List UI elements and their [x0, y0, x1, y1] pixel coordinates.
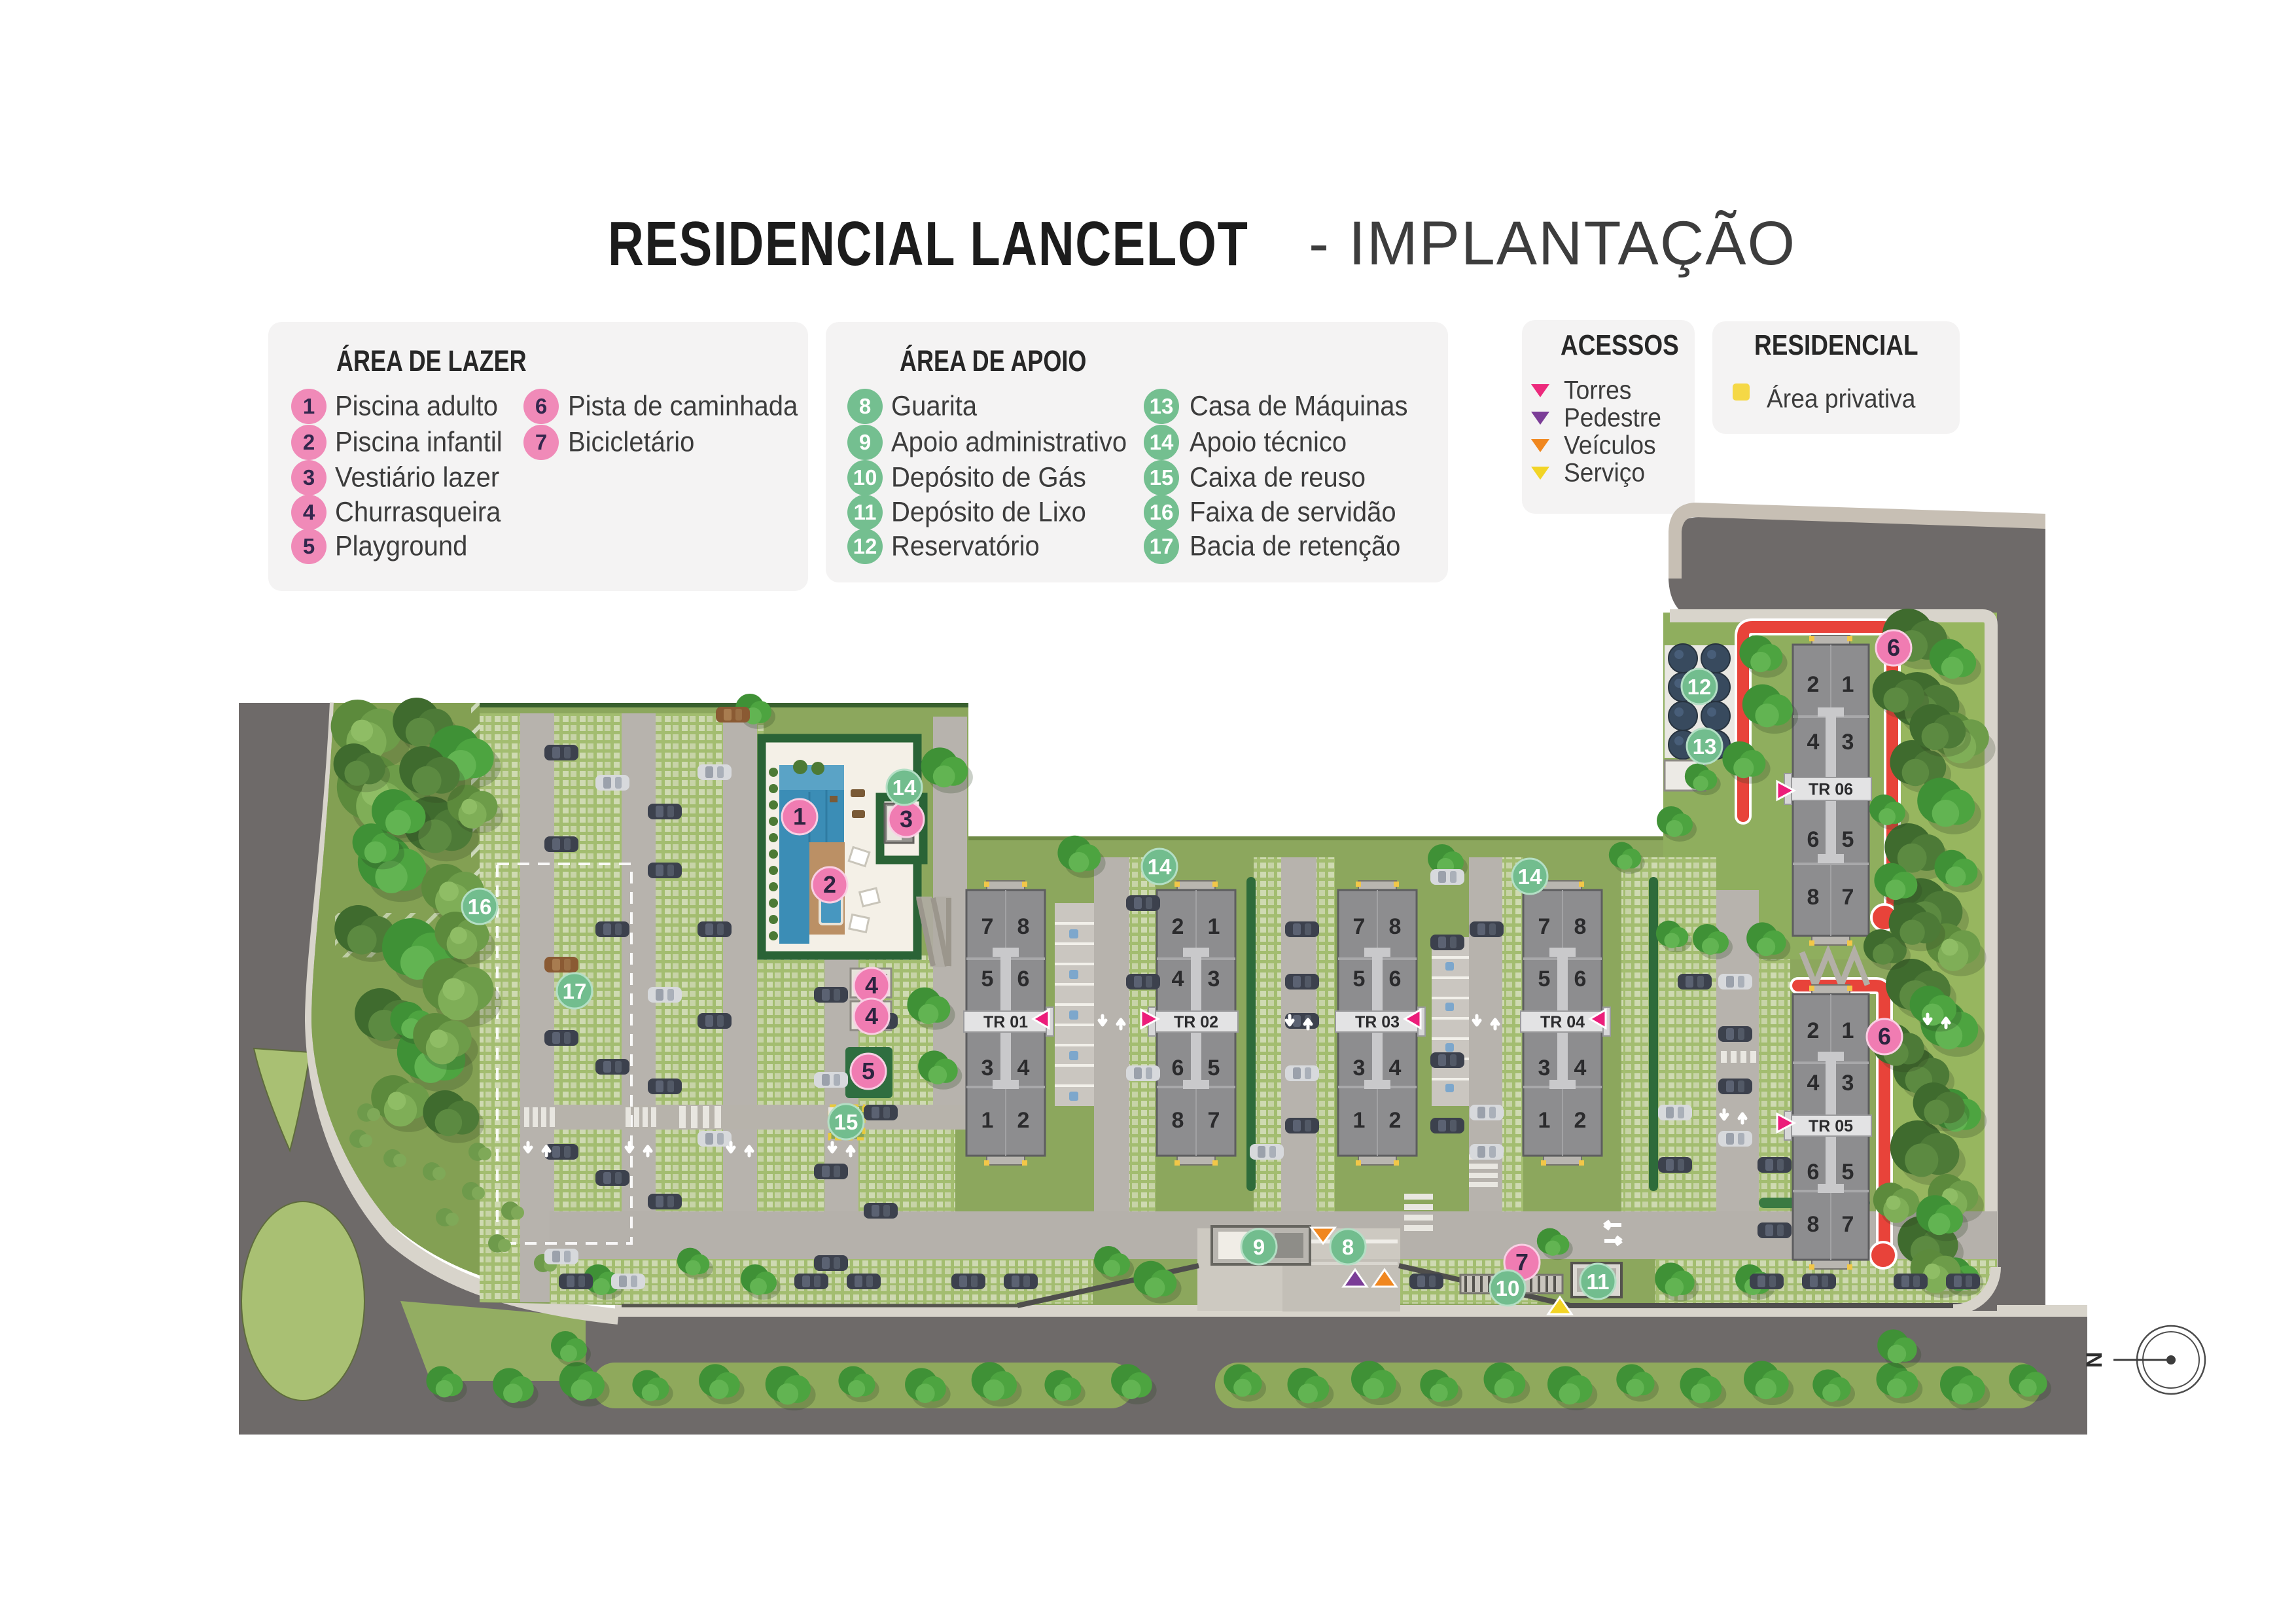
svg-text:3: 3	[1538, 1056, 1551, 1080]
svg-text:6: 6	[1807, 827, 1820, 852]
svg-text:3: 3	[1842, 1071, 1854, 1096]
svg-text:5: 5	[1353, 967, 1366, 991]
svg-text:N: N	[2082, 1352, 2107, 1368]
svg-text:3: 3	[900, 806, 913, 832]
svg-text:6: 6	[1574, 967, 1587, 991]
svg-text:8: 8	[1807, 1212, 1820, 1237]
svg-text:5: 5	[1842, 1160, 1854, 1185]
svg-text:8: 8	[1342, 1235, 1354, 1259]
svg-text:1: 1	[793, 803, 806, 830]
svg-text:TR 06: TR 06	[1809, 781, 1853, 799]
svg-text:4: 4	[865, 972, 878, 999]
svg-text:5: 5	[1538, 967, 1551, 991]
svg-text:2: 2	[1807, 672, 1820, 697]
svg-text:16: 16	[468, 895, 492, 919]
svg-text:7: 7	[981, 914, 994, 939]
svg-text:2: 2	[1172, 914, 1184, 939]
svg-text:4: 4	[1172, 967, 1184, 991]
svg-text:8: 8	[1017, 914, 1030, 939]
svg-text:8: 8	[1389, 914, 1402, 939]
svg-text:TR 01: TR 01	[983, 1013, 1028, 1031]
svg-text:8: 8	[1807, 885, 1820, 910]
svg-text:TR 04: TR 04	[1540, 1013, 1585, 1031]
svg-text:15: 15	[834, 1110, 858, 1134]
svg-text:3: 3	[1842, 730, 1854, 755]
svg-text:4: 4	[1574, 1056, 1587, 1080]
svg-text:4: 4	[1807, 1071, 1820, 1096]
svg-text:3: 3	[981, 1056, 994, 1080]
svg-text:14: 14	[1148, 855, 1172, 879]
svg-text:13: 13	[1693, 734, 1717, 758]
svg-text:4: 4	[1807, 730, 1820, 755]
svg-text:TR 02: TR 02	[1174, 1013, 1218, 1031]
svg-text:6: 6	[1017, 967, 1030, 991]
svg-text:2: 2	[823, 871, 836, 898]
svg-text:14: 14	[892, 776, 917, 800]
svg-text:TR 03: TR 03	[1355, 1013, 1400, 1031]
svg-text:1: 1	[1842, 1018, 1854, 1043]
svg-text:1: 1	[1538, 1108, 1551, 1133]
svg-text:7: 7	[1208, 1108, 1220, 1133]
svg-text:7: 7	[1515, 1249, 1528, 1275]
svg-text:4: 4	[1389, 1056, 1402, 1080]
svg-text:TR 05: TR 05	[1809, 1117, 1853, 1135]
svg-text:2: 2	[1389, 1108, 1402, 1133]
svg-text:6: 6	[1807, 1160, 1820, 1185]
svg-text:2: 2	[1807, 1018, 1820, 1043]
svg-text:5: 5	[862, 1058, 875, 1084]
svg-text:5: 5	[981, 967, 994, 991]
svg-text:12: 12	[1687, 675, 1712, 699]
svg-text:5: 5	[1842, 827, 1854, 852]
svg-text:8: 8	[1574, 914, 1587, 939]
svg-text:10: 10	[1496, 1276, 1520, 1300]
svg-text:6: 6	[1389, 967, 1402, 991]
svg-text:6: 6	[1887, 634, 1900, 661]
svg-text:6: 6	[1172, 1056, 1184, 1080]
svg-text:2: 2	[1574, 1108, 1587, 1133]
svg-text:6: 6	[1878, 1023, 1891, 1050]
svg-text:1: 1	[1842, 672, 1854, 697]
svg-text:7: 7	[1842, 885, 1854, 910]
svg-text:9: 9	[1253, 1235, 1265, 1259]
svg-text:17: 17	[563, 979, 587, 1003]
svg-text:8: 8	[1172, 1108, 1184, 1133]
svg-text:4: 4	[1017, 1056, 1030, 1080]
svg-text:5: 5	[1208, 1056, 1220, 1080]
svg-text:14: 14	[1518, 865, 1542, 889]
svg-text:1: 1	[981, 1108, 994, 1133]
svg-text:7: 7	[1353, 914, 1366, 939]
svg-text:3: 3	[1208, 967, 1220, 991]
svg-text:1: 1	[1353, 1108, 1366, 1133]
svg-text:2: 2	[1017, 1108, 1030, 1133]
svg-text:1: 1	[1208, 914, 1220, 939]
svg-text:7: 7	[1538, 914, 1551, 939]
svg-text:3: 3	[1353, 1056, 1366, 1080]
svg-text:11: 11	[1587, 1270, 1610, 1294]
svg-text:4: 4	[865, 1003, 878, 1029]
svg-text:7: 7	[1842, 1212, 1854, 1237]
